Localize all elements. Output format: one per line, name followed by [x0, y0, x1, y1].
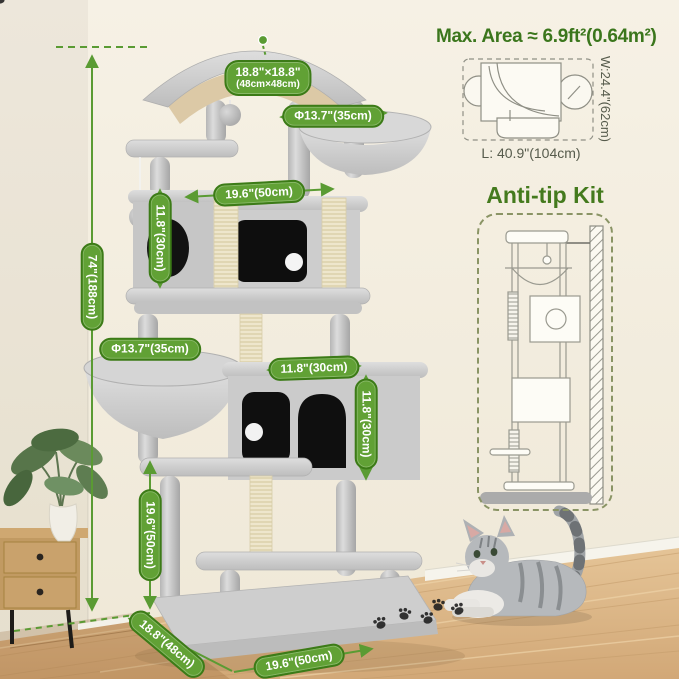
- left-platform: [126, 140, 238, 157]
- product-dimension-image: Max. Area ≈ 6.9ft²(0.64m²) W:24.4"(62cm)…: [0, 0, 679, 679]
- width-label: W:24.4"(62cm): [598, 56, 613, 142]
- anti-tip-title: Anti-tip Kit: [455, 182, 635, 209]
- drawer-knob: [37, 554, 44, 561]
- sisal-post: [250, 476, 272, 556]
- dim-middle-condo-height: 11.8"(30cm): [149, 192, 172, 283]
- sisal-post: [322, 198, 346, 290]
- top-marker-dot: [259, 36, 268, 45]
- dim-total-height: 74"(188cm): [81, 243, 104, 331]
- dim-lower-height: 19.6"(50cm): [139, 489, 162, 581]
- dim-top-platform: 18.8"×18.8" (48cm×48cm): [224, 60, 311, 96]
- vase: [49, 504, 77, 541]
- length-label: L: 40.9"(104cm): [455, 145, 607, 161]
- sisal-post: [214, 198, 238, 290]
- dim-top-platform-line1: 18.8"×18.8": [235, 65, 300, 79]
- dim-top-platform-line2: (48cm×48cm): [235, 80, 300, 91]
- pompom-toy: [219, 104, 241, 126]
- dim-middle-width: 19.6"(50cm): [213, 179, 306, 206]
- dim-top-basket-diameter: Φ13.7"(35cm): [282, 105, 384, 128]
- max-area-label: Max. Area ≈ 6.9ft²(0.64m²): [436, 26, 656, 48]
- anti-tip-panel-border: [477, 213, 613, 511]
- dim-lower-condo-height: 11.8"(30cm): [355, 378, 378, 469]
- dim-lower-condo-depth: 11.8"(30cm): [268, 355, 360, 381]
- dim-lower-basket-diameter: Φ13.7"(35cm): [99, 338, 201, 361]
- drawer-knob: [37, 589, 44, 596]
